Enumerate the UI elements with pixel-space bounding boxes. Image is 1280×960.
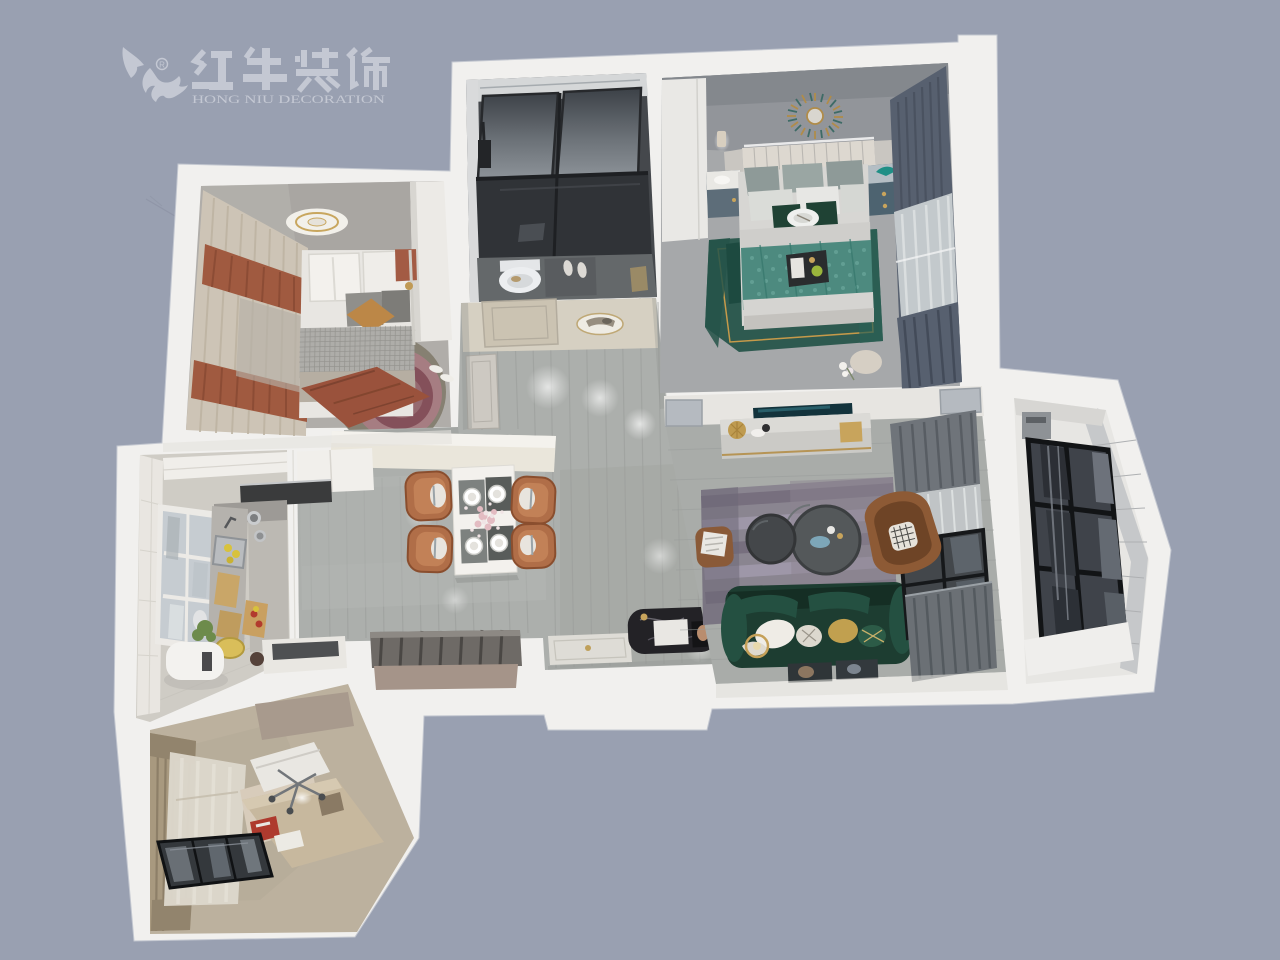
svg-text:R: R [159,61,165,70]
svg-text:HONG NIU DECORATION: HONG NIU DECORATION [192,94,386,106]
